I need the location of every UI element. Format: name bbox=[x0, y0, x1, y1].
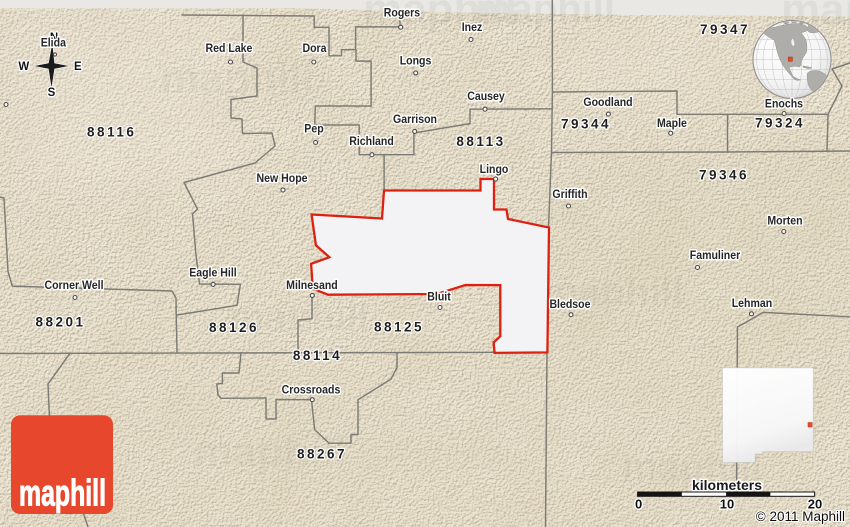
svg-text:88126: 88126 bbox=[209, 320, 259, 335]
svg-text:88201: 88201 bbox=[35, 314, 85, 329]
svg-text:Lingo: Lingo bbox=[480, 164, 509, 177]
svg-text:0: 0 bbox=[635, 497, 642, 512]
svg-text:Longs: Longs bbox=[400, 55, 432, 68]
svg-text:88116: 88116 bbox=[87, 125, 136, 140]
svg-text:maphill: maphill bbox=[19, 473, 106, 514]
svg-text:Lehman: Lehman bbox=[732, 298, 773, 311]
svg-text:10: 10 bbox=[720, 497, 734, 512]
svg-text:kilometers: kilometers bbox=[692, 477, 762, 493]
svg-text:Morten: Morten bbox=[767, 215, 802, 228]
svg-text:Inez: Inez bbox=[462, 22, 483, 35]
svg-text:79344: 79344 bbox=[561, 117, 611, 132]
svg-text:W: W bbox=[18, 61, 29, 73]
svg-text:Maple: Maple bbox=[657, 118, 687, 131]
svg-text:Goodland: Goodland bbox=[583, 97, 632, 110]
svg-text:New Hope: New Hope bbox=[257, 173, 308, 186]
svg-text:Eagle Hill: Eagle Hill bbox=[189, 267, 237, 280]
svg-text:Causey: Causey bbox=[467, 91, 505, 104]
svg-text:maphill: maphill bbox=[475, 0, 615, 31]
svg-text:79347: 79347 bbox=[700, 22, 750, 37]
svg-text:Elida: Elida bbox=[41, 37, 67, 50]
svg-text:Pep: Pep bbox=[304, 123, 323, 136]
svg-text:Corner Well: Corner Well bbox=[44, 280, 103, 293]
svg-text:Griffith: Griffith bbox=[552, 189, 587, 202]
svg-text:Bledsoe: Bledsoe bbox=[549, 299, 590, 312]
svg-text:Enochs: Enochs bbox=[765, 98, 803, 111]
svg-text:88267: 88267 bbox=[297, 447, 347, 462]
svg-text:Famuliner: Famuliner bbox=[690, 250, 741, 263]
svg-text:maphill: maphill bbox=[160, 54, 314, 103]
svg-text:88114: 88114 bbox=[293, 348, 342, 363]
svg-text:88113: 88113 bbox=[456, 134, 505, 149]
svg-text:Milnesand: Milnesand bbox=[286, 280, 338, 293]
svg-text:Richland: Richland bbox=[349, 136, 394, 149]
svg-text:Garrison: Garrison bbox=[393, 114, 437, 127]
svg-text:79324: 79324 bbox=[755, 116, 805, 131]
svg-text:Dora: Dora bbox=[302, 43, 327, 56]
svg-text:Rogers: Rogers bbox=[384, 7, 420, 20]
svg-text:E: E bbox=[74, 61, 82, 73]
svg-text:Red Lake: Red Lake bbox=[206, 43, 253, 56]
svg-text:S: S bbox=[48, 87, 56, 99]
svg-text:Crossroads: Crossroads bbox=[282, 384, 341, 397]
svg-text:79346: 79346 bbox=[699, 168, 749, 183]
svg-text:88125: 88125 bbox=[374, 320, 424, 335]
svg-text:Bluit: Bluit bbox=[427, 291, 451, 304]
svg-text:© 2011 Maphill: © 2011 Maphill bbox=[756, 509, 845, 524]
